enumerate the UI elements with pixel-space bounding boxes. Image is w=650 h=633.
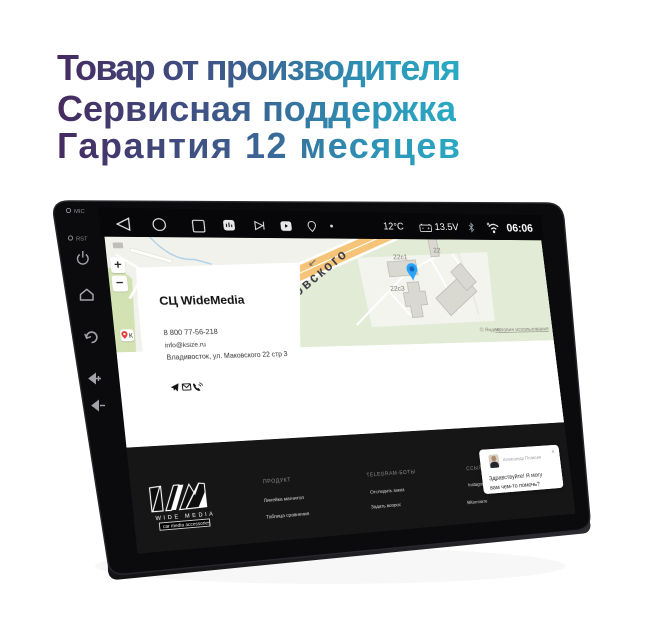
svg-text:22с1: 22с1: [393, 253, 408, 261]
svg-text:MIC: MIC: [74, 209, 85, 215]
svg-text:22: 22: [433, 247, 441, 255]
svg-text:К: К: [129, 333, 134, 340]
svg-text:RST: RST: [76, 237, 88, 243]
svg-text:22с3: 22с3: [390, 285, 406, 293]
